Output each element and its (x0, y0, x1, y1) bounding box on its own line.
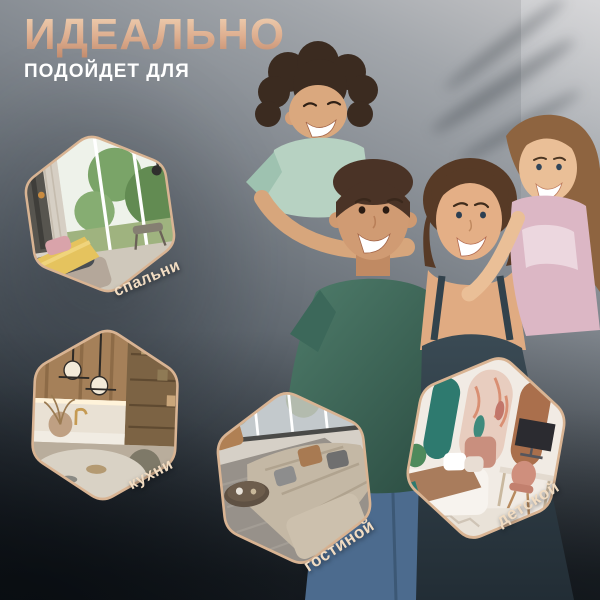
header: ИДЕАЛЬНО ПОДОЙДЕТ ДЛЯ (24, 12, 285, 83)
hexagon-kitchen (17, 321, 193, 509)
living-scene (197, 374, 390, 579)
hexagon-children (383, 336, 588, 559)
living-photo (198, 377, 390, 578)
poster: спальни кухни гостиной детской ИДЕАЛЬНО … (0, 0, 600, 600)
dad-head (329, 159, 417, 276)
poster-title: ИДЕАЛЬНО (24, 12, 285, 58)
kitchen-scene (17, 321, 193, 512)
poster-subtitle: ПОДОЙДЕТ ДЛЯ (24, 61, 285, 83)
children-photo (383, 336, 588, 559)
kitchen-photo (17, 321, 193, 509)
hexagon-living (198, 377, 390, 578)
